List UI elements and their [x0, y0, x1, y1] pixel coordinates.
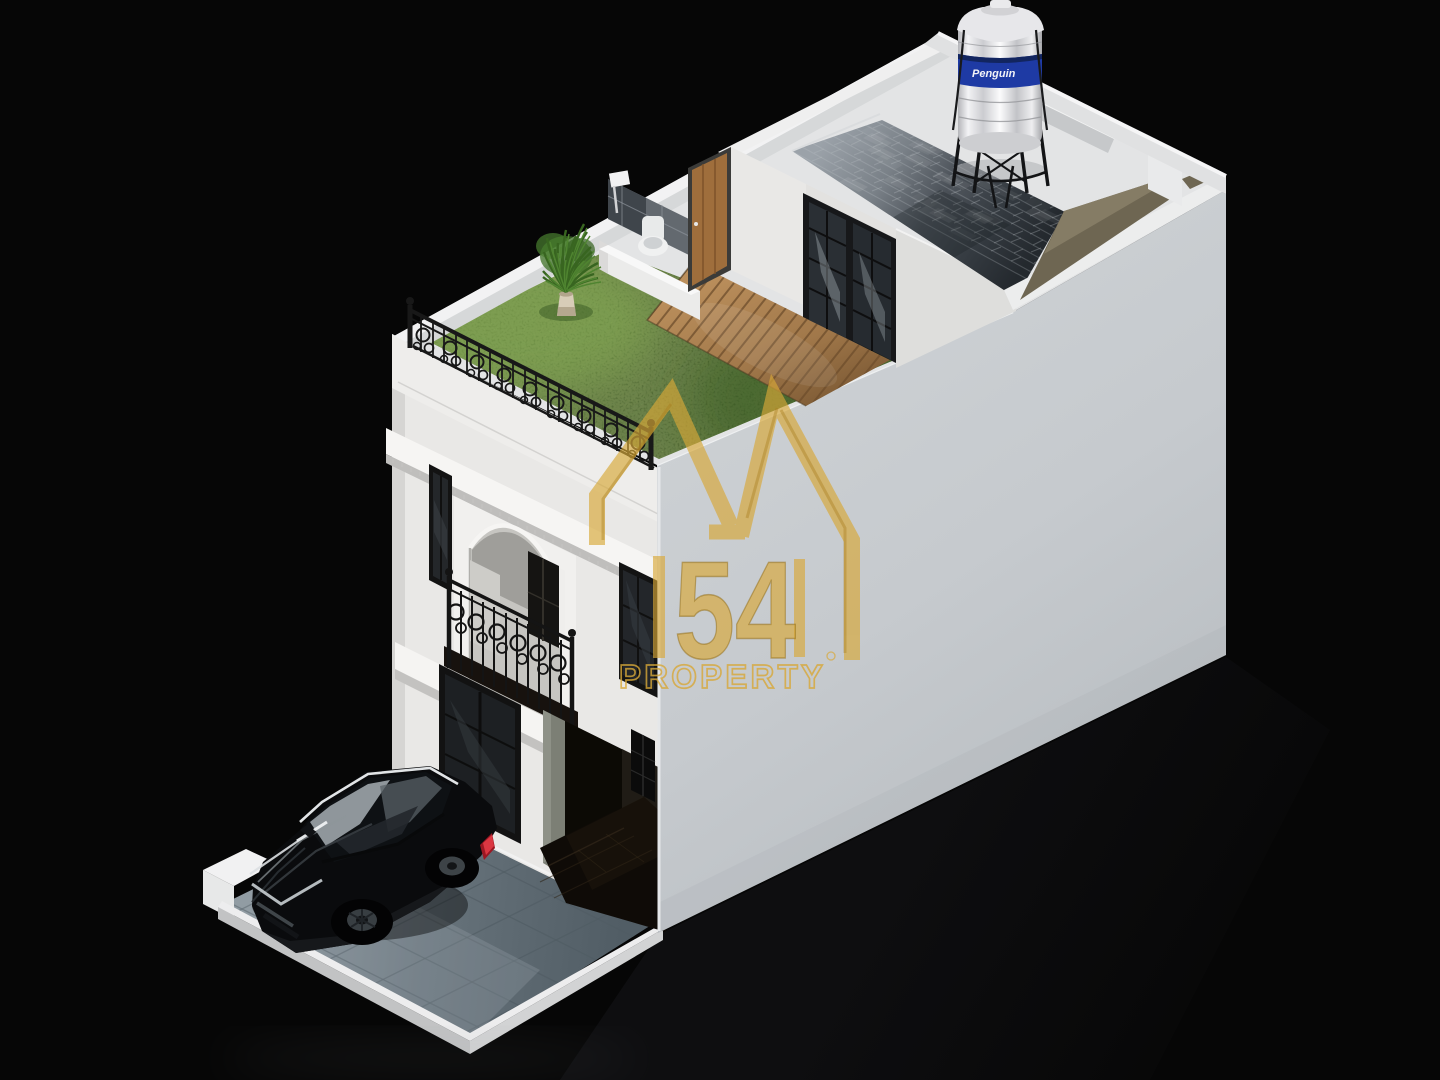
- svg-text:PROPERTY: PROPERTY: [619, 658, 826, 695]
- svg-text:Penguin: Penguin: [972, 68, 1016, 80]
